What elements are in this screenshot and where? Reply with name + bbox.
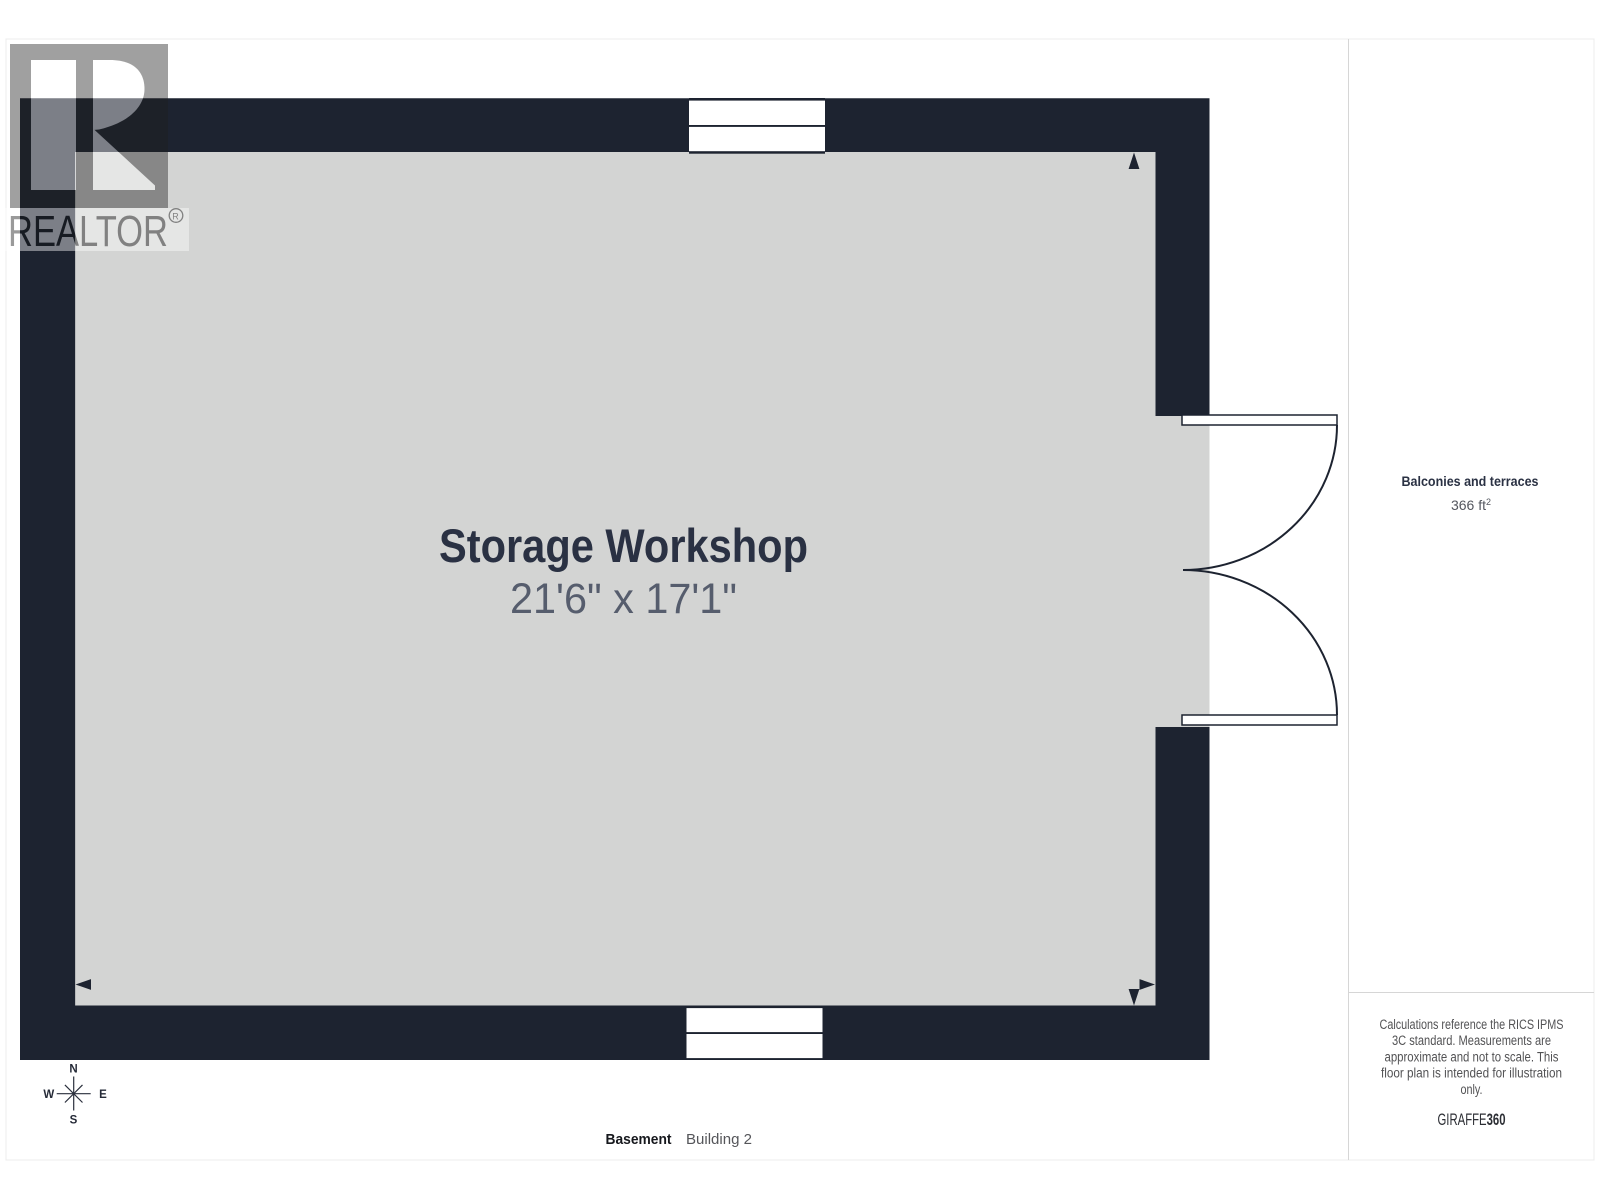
svg-text:N: N (69, 1064, 77, 1076)
svg-text:floor plan is intended for ill: floor plan is intended for illustration (1381, 1066, 1562, 1081)
svg-text:GIRAFFE360: GIRAFFE360 (1438, 1111, 1506, 1129)
svg-text:approximate and not to scale.: approximate and not to scale. This (1385, 1049, 1559, 1064)
svg-text:Balconies and terraces: Balconies and terraces (1402, 474, 1539, 489)
svg-text:E: E (99, 1089, 107, 1101)
svg-text:Storage Workshop: Storage Workshop (439, 519, 808, 572)
svg-text:Basement: Basement (606, 1132, 672, 1148)
svg-text:3C standard. Measurements are: 3C standard. Measurements are (1392, 1033, 1551, 1048)
svg-text:Calculations reference the RIC: Calculations reference the RICS IPMS (1380, 1017, 1564, 1032)
svg-text:366 ft2: 366 ft2 (1451, 497, 1491, 513)
svg-text:21'6" x 17'1": 21'6" x 17'1" (510, 576, 737, 623)
svg-text:only.: only. (1461, 1082, 1483, 1097)
svg-text:R: R (172, 212, 179, 222)
svg-text:Building 2: Building 2 (686, 1132, 752, 1148)
svg-text:S: S (70, 1115, 78, 1127)
svg-text:W: W (43, 1089, 54, 1101)
svg-text:REALTOR: REALTOR (8, 207, 168, 256)
